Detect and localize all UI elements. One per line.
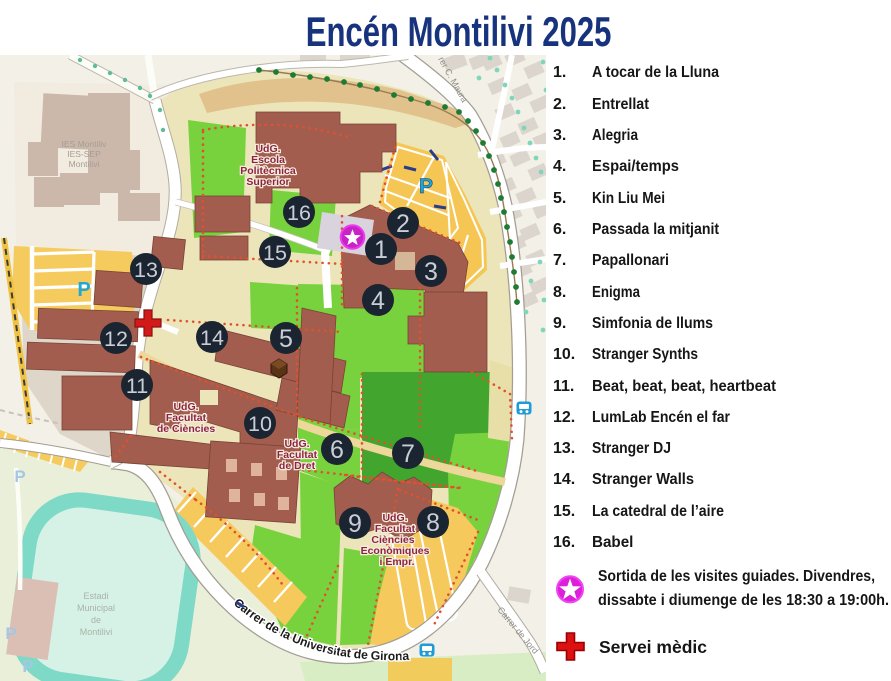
svg-text:9: 9 xyxy=(348,510,362,538)
svg-text:Estadi: Estadi xyxy=(83,591,108,601)
svg-text:Montilivi: Montilivi xyxy=(69,159,100,169)
svg-text:10: 10 xyxy=(248,412,272,436)
svg-text:P: P xyxy=(5,624,16,643)
svg-text:16: 16 xyxy=(287,201,311,225)
svg-text:6: 6 xyxy=(330,436,344,464)
svg-text:13: 13 xyxy=(134,258,158,282)
svg-text:12: 12 xyxy=(104,327,128,351)
svg-text:IES Montiliv: IES Montiliv xyxy=(62,139,108,149)
svg-text:11: 11 xyxy=(126,374,148,398)
svg-text:4: 4 xyxy=(371,287,385,315)
svg-text:IES-SEP: IES-SEP xyxy=(67,149,101,159)
svg-text:2: 2 xyxy=(396,210,410,238)
svg-text:de: de xyxy=(91,615,101,625)
svg-text:7: 7 xyxy=(401,440,415,468)
svg-text:5: 5 xyxy=(279,325,293,353)
svg-text:14: 14 xyxy=(200,326,224,350)
svg-text:Municipal: Municipal xyxy=(77,603,115,613)
svg-text:15: 15 xyxy=(263,241,287,265)
svg-text:de Dret: de Dret xyxy=(279,460,316,472)
svg-text:P: P xyxy=(419,175,433,198)
svg-text:P: P xyxy=(77,279,90,301)
svg-text:1: 1 xyxy=(374,236,388,264)
svg-text:3: 3 xyxy=(424,258,438,286)
svg-text:Superior: Superior xyxy=(246,176,289,188)
svg-text:8: 8 xyxy=(426,509,440,537)
svg-text:Montilivi: Montilivi xyxy=(80,627,113,637)
svg-text:de Ciències: de Ciències xyxy=(157,423,216,435)
svg-text:P: P xyxy=(14,467,25,486)
svg-text:P: P xyxy=(22,657,33,676)
svg-text:i Empr.: i Empr. xyxy=(379,556,414,568)
